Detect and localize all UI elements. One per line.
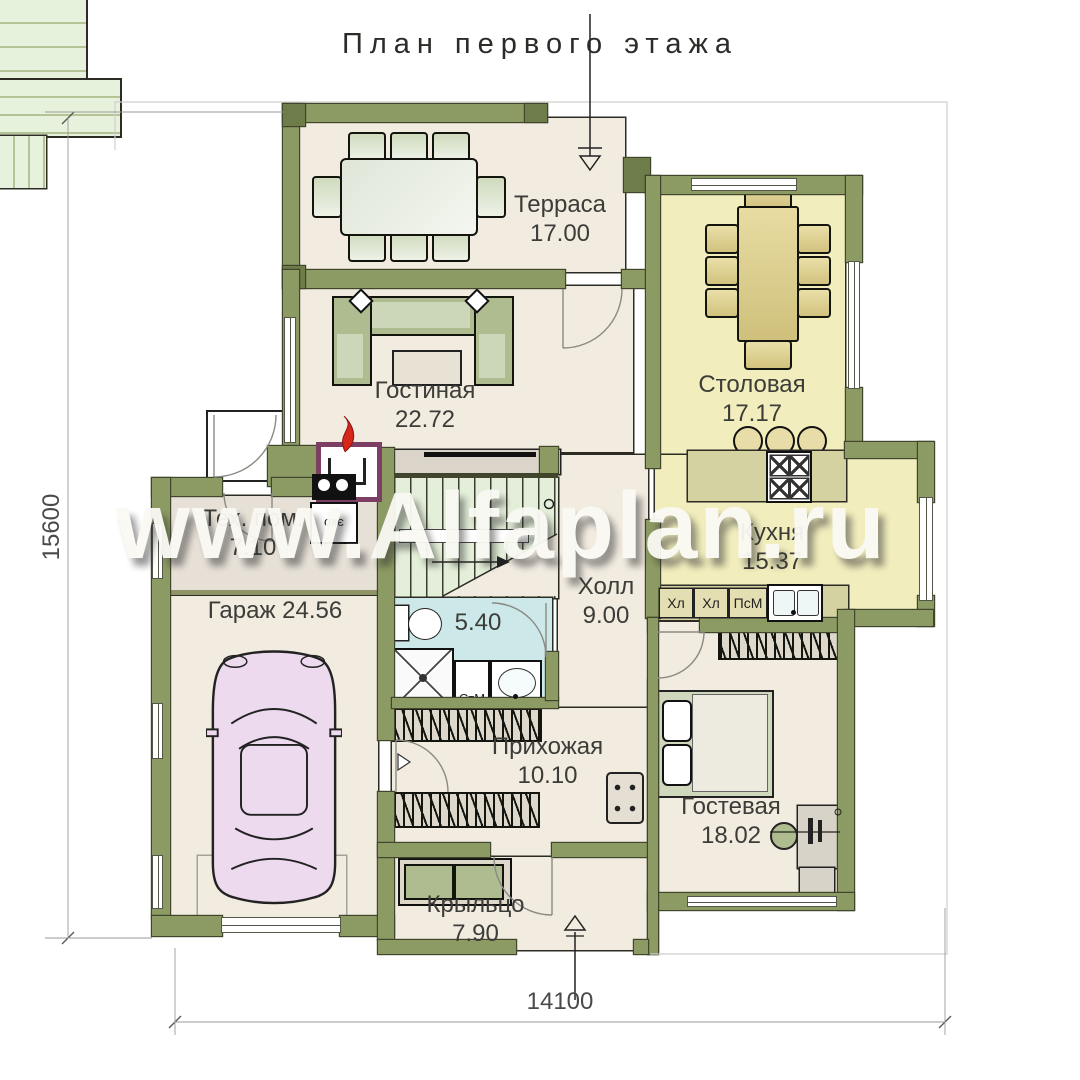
chair [705, 288, 739, 318]
wall [552, 843, 648, 857]
wall [634, 940, 648, 954]
terrace-label: Терраса 17.00 [495, 190, 625, 249]
wall [283, 104, 547, 122]
garage-door [222, 918, 340, 932]
toilet-tank [394, 606, 408, 640]
bed-pillow [662, 744, 692, 786]
porch-label: Крыльцо 7.90 [398, 890, 553, 949]
sink-faucet [791, 610, 796, 615]
tv [424, 452, 536, 457]
room-name: Терраса [495, 190, 625, 219]
dimension-horizontal: 14100 [515, 988, 605, 1016]
room-name: Прихожая [450, 732, 645, 761]
room-area: 5.40 [436, 608, 520, 637]
wall [646, 176, 660, 468]
room-name: Гостиная [350, 376, 500, 405]
page-title: План первого этажа [0, 28, 1080, 61]
fridge: Хл [660, 589, 692, 617]
sofa-seat [479, 334, 505, 378]
entry-label: Прихожая 10.10 [450, 732, 645, 791]
room-name: Гараж [208, 597, 276, 624]
chair [348, 232, 386, 262]
room-name: Гостевая [656, 792, 806, 821]
bath-faucet [513, 694, 518, 699]
garage-entry-steps [0, 136, 46, 188]
shower-drain [419, 674, 427, 682]
living-label: Гостиная 22.72 [350, 376, 500, 435]
wall [540, 447, 558, 473]
chair [390, 232, 428, 262]
desk-return [800, 868, 834, 894]
wall-pillar [283, 104, 305, 126]
chair [797, 288, 831, 318]
room-name: Крыльцо [398, 890, 553, 919]
wall [378, 843, 490, 857]
wall [918, 442, 934, 502]
chair [432, 232, 470, 262]
wall [700, 618, 853, 632]
sofa-seat [337, 334, 363, 378]
room-area: 10.10 [450, 761, 645, 790]
fridge-label: Хл [702, 595, 720, 611]
dimension-vertical: 15600 [38, 467, 66, 587]
floor-plan-canvas: План первого этажа [0, 0, 1080, 1080]
watermark: www.Alfaplan.ru [116, 472, 887, 581]
dishwasher: ПсМ [730, 589, 766, 617]
chair [744, 340, 792, 370]
chair [705, 224, 739, 254]
wall [392, 698, 558, 708]
dining-table [737, 206, 799, 342]
fridge: Хл [695, 589, 727, 617]
wall [283, 104, 299, 288]
dining-label: Столовая 17.17 [672, 370, 832, 429]
wall [845, 610, 933, 626]
wall [546, 652, 558, 700]
chair [312, 176, 342, 218]
sink-basin [797, 590, 819, 616]
car [206, 644, 342, 906]
window [285, 318, 295, 442]
wall [283, 270, 565, 288]
fridge-label: Хл [667, 595, 685, 611]
porch-steps [0, 80, 120, 136]
window [920, 498, 932, 600]
bed-mattress [692, 694, 768, 792]
window [153, 704, 162, 758]
wall [846, 388, 862, 448]
sofa-seat [372, 302, 470, 328]
window [692, 179, 796, 190]
window [153, 856, 162, 908]
guest-label: Гостевая 18.02 [656, 792, 806, 851]
wall [152, 916, 222, 936]
wall [838, 610, 854, 910]
garage-label: Гараж 24.56 [180, 596, 370, 625]
room-area: 17.17 [672, 399, 832, 428]
chair [705, 256, 739, 286]
room-area: 24.56 [282, 597, 342, 624]
wardrobe [394, 794, 538, 826]
dishwasher-label: ПсМ [734, 595, 763, 611]
room-area: 7.90 [398, 919, 553, 948]
bathroom-label: 5.40 [436, 608, 520, 637]
chair [797, 256, 831, 286]
terrace-table [340, 158, 478, 236]
chair [797, 224, 831, 254]
window [688, 897, 836, 906]
room-area: 17.00 [495, 219, 625, 248]
window [849, 262, 859, 388]
bed-pillow [662, 700, 692, 742]
wall [378, 792, 394, 940]
garage-tech-divider [170, 590, 378, 595]
room-area: 9.00 [556, 601, 656, 630]
room-name: Столовая [672, 370, 832, 399]
wall-pillar [525, 104, 547, 122]
room-area: 18.02 [656, 821, 806, 850]
wall [846, 176, 862, 262]
wall [648, 618, 658, 954]
room-area: 22.72 [350, 405, 500, 434]
